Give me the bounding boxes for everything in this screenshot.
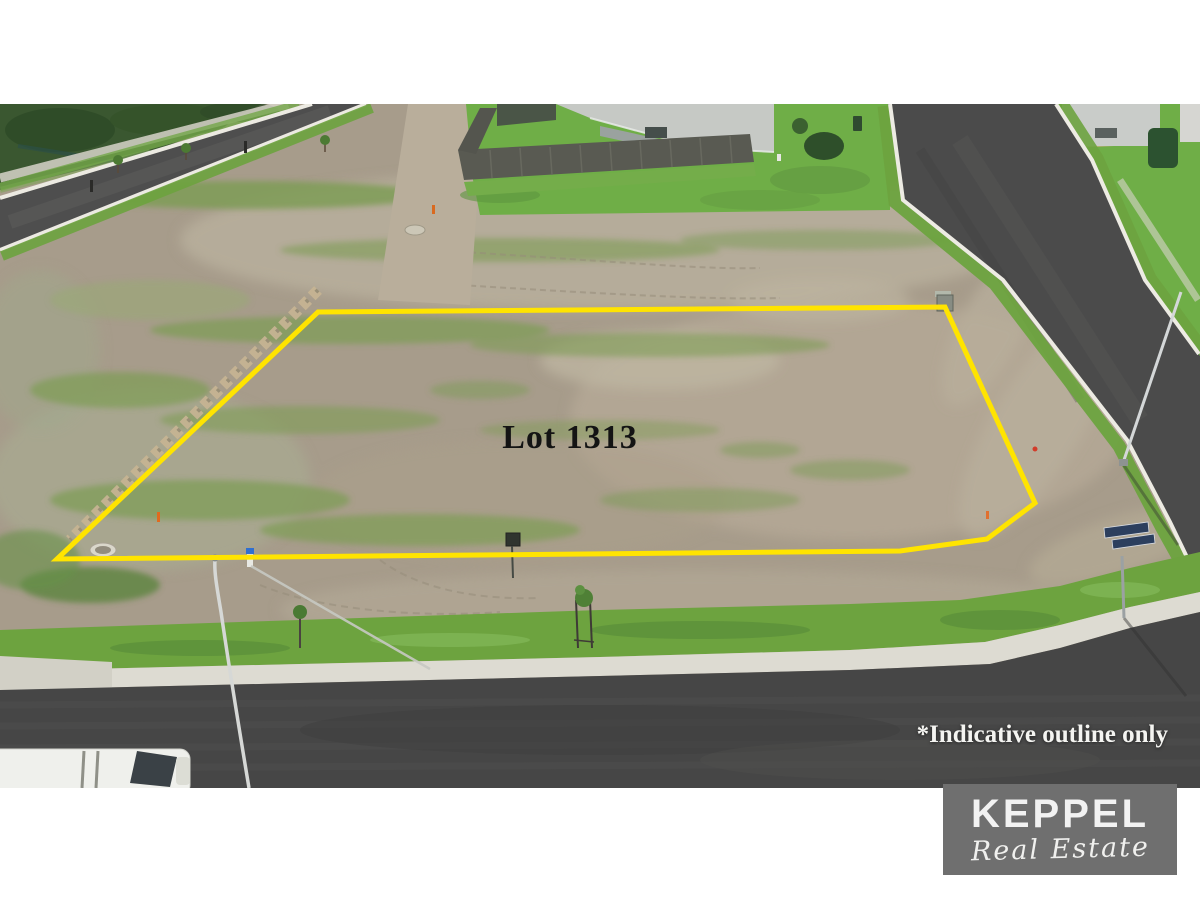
lot-label: Lot 1313 xyxy=(470,419,670,457)
bollard xyxy=(90,180,93,192)
far-house xyxy=(1180,104,1200,142)
footpath-pad xyxy=(0,656,112,692)
small-tree xyxy=(792,118,808,134)
manhole-cover xyxy=(405,225,425,235)
lot-sign-post xyxy=(512,546,513,578)
car-windshield xyxy=(130,751,177,787)
far-house-window xyxy=(1095,128,1117,138)
lot-sign xyxy=(506,533,520,546)
survey-stake xyxy=(157,512,160,522)
survey-marker xyxy=(1033,447,1038,452)
real-estate-listing-photo: Lot 1313 *Indicative outline only KEPPEL… xyxy=(0,0,1200,900)
wheelie-bin xyxy=(853,116,862,131)
white-car xyxy=(0,749,190,795)
street-sign-post xyxy=(1122,556,1124,618)
house-window xyxy=(645,127,667,138)
sapling xyxy=(293,605,307,619)
roof-rack xyxy=(82,751,84,788)
roof-rack xyxy=(96,751,98,788)
logo-tagline-text: Real Estate xyxy=(970,833,1150,868)
bush xyxy=(804,132,844,160)
pole-base xyxy=(1119,459,1128,466)
water-tank xyxy=(1148,128,1178,168)
disclaimer-text: *Indicative outline only xyxy=(880,721,1168,749)
keppel-logo: KEPPEL Real Estate xyxy=(943,784,1177,875)
bollard xyxy=(244,141,247,153)
marker-post-blue-cap xyxy=(246,548,254,554)
survey-stake xyxy=(986,511,989,519)
logo-brand-text: KEPPEL xyxy=(971,794,1149,834)
survey-stake xyxy=(432,205,435,214)
mailbox xyxy=(777,154,781,161)
car-bonnet xyxy=(176,757,190,785)
